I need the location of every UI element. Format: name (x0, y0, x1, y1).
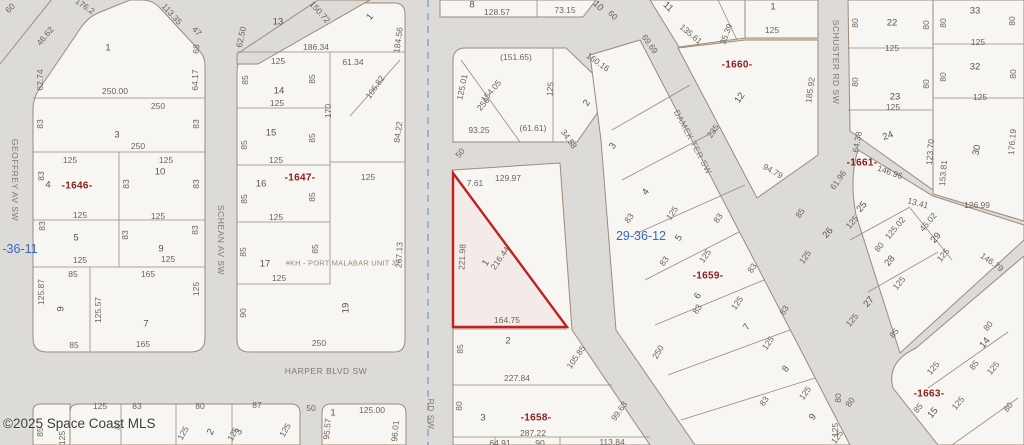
lot-number: 19 (341, 303, 352, 314)
dimension-label: 128.57 (484, 7, 510, 17)
dimension-label: 287.22 (520, 428, 546, 438)
block-number: -1646- (62, 181, 93, 192)
dimension-label: 267.13 (393, 242, 404, 268)
dimension-label: 83 (190, 225, 200, 234)
lot-number: 1 (105, 43, 110, 54)
lot-number: 9 (56, 306, 67, 311)
lot-number: 4 (45, 180, 50, 191)
dimension-label: 125.87 (36, 279, 46, 305)
dimension-label: 80 (938, 18, 948, 27)
lot-number: 8 (469, 0, 474, 11)
dimension-label: 125 (63, 155, 77, 165)
dimension-label: 165 (136, 339, 150, 349)
section-label: -36-11 (2, 242, 37, 256)
watermark: ©2025 Space Coast MLS (3, 416, 156, 431)
dimension-label: 83 (37, 221, 47, 230)
lot-number: 15 (266, 128, 277, 139)
dimension-label: 68 (191, 44, 202, 54)
dimension-label: 83 (191, 179, 201, 188)
dimension-label: 125 (544, 81, 555, 96)
block-number: -1660- (722, 60, 753, 71)
dimension-label: 83 (35, 119, 45, 128)
street-name: RD SW (426, 399, 436, 430)
dimension-label: 85 (68, 269, 77, 279)
dimension-label: 64.17 (190, 69, 200, 90)
dimension-label: 83 (36, 171, 46, 180)
dimension-label: 80 (1008, 69, 1018, 78)
dimension-label: 125 (361, 172, 375, 182)
dimension-label: 164.75 (494, 315, 520, 325)
dimension-label: (61.61) (520, 123, 547, 133)
dimension-label: 80 (938, 72, 948, 81)
dimension-label: 93.25 (468, 125, 489, 135)
dimension-label: 170 (323, 104, 333, 118)
block-1660-north (745, 0, 818, 38)
dimension-label: 85 (307, 133, 317, 142)
dimension-label: 125 (93, 401, 107, 411)
block-schuster-east (933, 0, 1024, 221)
lot-number: 3 (480, 413, 485, 424)
dimension-label: 80 (850, 18, 860, 27)
dimension-label: 83 (120, 230, 130, 239)
block-number: -1659- (693, 271, 724, 282)
dimension-label: 186.34 (303, 42, 329, 52)
lot-number: 14 (274, 86, 285, 97)
dimension-label: 113.84 (599, 437, 624, 445)
dimension-label: 80 (1007, 16, 1017, 25)
dimension-label: 227.84 (504, 373, 530, 383)
dimension-label: 125 (272, 273, 286, 283)
dimension-label: 129.97 (495, 173, 521, 183)
block-number: -1658- (521, 413, 552, 424)
lot-number: 5 (73, 233, 78, 244)
dimension-label: 125 (971, 37, 985, 47)
dimension-label: 125 (269, 155, 283, 165)
street-name: HARPER BLVD SW (285, 366, 367, 376)
street-name: SCHUSTER RD SW (831, 20, 841, 104)
map-image: GEOFFREY AV SWSCHEAN AV SWHARPER BLVD SW… (0, 0, 1024, 445)
lot-number: 16 (256, 179, 267, 190)
dimension-label: 80 (921, 20, 931, 29)
lot-number: 33 (970, 6, 981, 17)
dimension-label: 125 (765, 25, 779, 35)
dimension-label: 125 (73, 210, 87, 220)
dimension-label: 250 (151, 101, 165, 111)
dimension-label: 61.34 (342, 57, 363, 67)
dimension-label: 80 (833, 393, 843, 402)
dimension-label: 80 (921, 79, 931, 88)
dimension-label: 83 (132, 401, 141, 411)
dimension-label: 125 (885, 43, 899, 53)
lot-number: 32 (970, 62, 981, 73)
dimension-label: 125 (57, 431, 67, 445)
dimension-label: 125.57 (93, 297, 103, 323)
dimension-label: 125 (161, 254, 175, 264)
dimension-label: 90 (535, 438, 544, 445)
dimension-label: 85 (307, 74, 317, 83)
section-label: 29-36-12 (616, 229, 666, 243)
dimension-label: 50 (306, 403, 315, 413)
dimension-label: 80 (454, 401, 464, 410)
lot-number: 1 (330, 408, 335, 419)
dimension-label: 85 (239, 140, 249, 149)
dimension-label: 83 (121, 179, 131, 188)
lot-number: 2 (505, 336, 510, 347)
block-number: -1661- (847, 158, 878, 169)
dimension-label: 221.98 (456, 244, 467, 270)
dimension-label: 83 (191, 119, 201, 128)
lot-number: 23 (890, 92, 901, 103)
dimension-label: 85 (310, 244, 320, 253)
dimension-label: 125 (159, 155, 173, 165)
dimension-label: 250 (131, 141, 145, 151)
dimension-label: 250.00 (102, 86, 128, 96)
street-name: SCHEAN AV SW (216, 205, 226, 275)
lot-number: 7 (143, 319, 148, 330)
plat-note: #KH - PORT MALABAR UNIT 37 (286, 259, 401, 268)
dimension-label: 85 (240, 75, 250, 84)
dimension-label: 7.61 (467, 178, 484, 188)
dimension-label: 85 (239, 194, 249, 203)
dimension-label: 125 (830, 423, 840, 437)
dimension-label: 125.00 (359, 405, 385, 415)
dimension-label: 165 (141, 269, 155, 279)
lot-number: 13 (273, 17, 284, 28)
dimension-label: 250 (312, 338, 326, 348)
dimension-label: 95.57 (321, 418, 333, 440)
lot-number: 9 (158, 244, 163, 255)
lot-number: 1 (770, 2, 775, 13)
dimension-label: 125 (269, 212, 283, 222)
dimension-label: 64.91 (489, 438, 510, 445)
street-name: GEOFFREY AV SW (10, 139, 20, 221)
dimension-label: 125 (151, 211, 165, 221)
lot-number: 10 (155, 167, 166, 178)
dimension-label: 62.74 (35, 69, 45, 90)
dimension-label: 126.99 (964, 200, 990, 210)
dimension-label: 85 (455, 344, 465, 353)
dimension-label: 73.15 (554, 5, 575, 15)
dimension-label: 125 (973, 92, 987, 102)
block-number: -1663- (914, 389, 945, 400)
dimension-label: 90 (238, 308, 248, 317)
lot-number: 22 (887, 18, 898, 29)
dimension-label: 80 (850, 77, 860, 86)
block-number: -1647- (285, 173, 316, 184)
dimension-label: 96.01 (389, 420, 401, 442)
dimension-label: 125 (271, 56, 285, 66)
lot-number: 17 (260, 259, 271, 270)
dimension-label: 87 (252, 400, 261, 410)
dimension-label: 125 (73, 255, 87, 265)
lot-number: 3 (114, 130, 119, 141)
dimension-label: 125 (270, 98, 284, 108)
lot-number: 30 (971, 144, 984, 156)
dimension-label: 85 (238, 247, 248, 256)
dimension-label: 85 (307, 192, 317, 201)
dimension-label: 85 (69, 340, 78, 350)
dimension-label: 125 (191, 282, 201, 296)
dimension-label: 125 (886, 102, 900, 112)
dimension-label: 80 (195, 401, 204, 411)
dimension-label: (151.65) (500, 52, 532, 62)
